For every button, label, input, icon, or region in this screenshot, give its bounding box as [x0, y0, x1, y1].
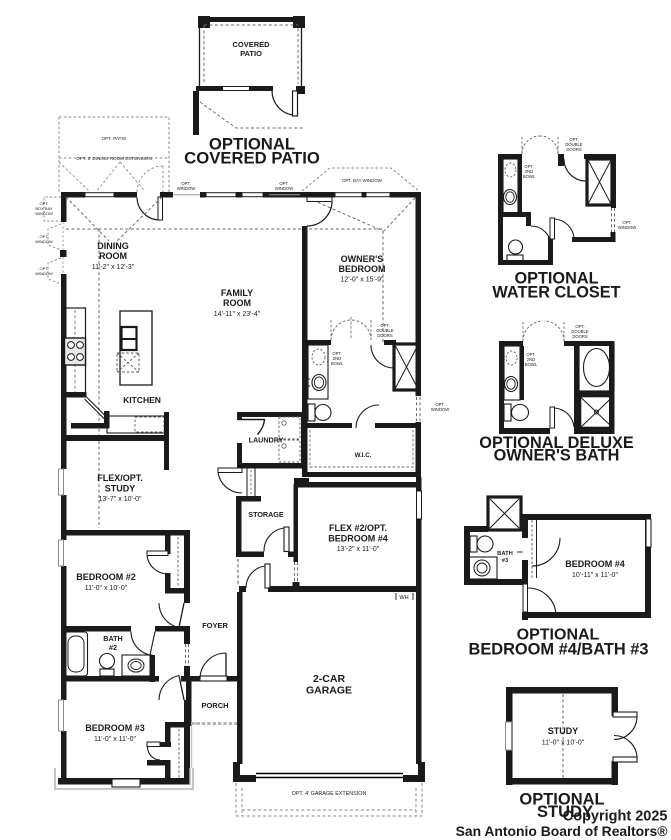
svg-text:WINDOW: WINDOW — [35, 239, 53, 244]
svg-text:BOWL: BOWL — [523, 174, 536, 179]
svg-text:BEDROOM #4: BEDROOM #4 — [328, 534, 388, 544]
svg-text:11'-0" x 10'-0": 11'-0" x 10'-0" — [542, 740, 585, 747]
svg-text:WINDOW: WINDOW — [275, 186, 293, 191]
svg-text:WATER CLOSET: WATER CLOSET — [492, 284, 620, 302]
svg-text:LAUNDRY: LAUNDRY — [249, 436, 284, 445]
svg-text:DOORS: DOORS — [377, 333, 393, 338]
svg-text:DOORS: DOORS — [566, 147, 582, 152]
svg-text:COVERED: COVERED — [232, 40, 270, 49]
svg-text:GARAGE: GARAGE — [306, 685, 352, 697]
svg-text:COVERED PATIO: COVERED PATIO — [184, 149, 320, 168]
svg-text:STUDY: STUDY — [548, 726, 579, 736]
svg-text:WINDOW: WINDOW — [35, 211, 53, 216]
svg-text:2-CAR: 2-CAR — [313, 673, 346, 685]
svg-text:10'-11" x 11'-0": 10'-11" x 11'-0" — [572, 572, 618, 579]
svg-text:ROOM: ROOM — [223, 298, 251, 308]
svg-text:San Antonio Board of Realtors®: San Antonio Board of Realtors® — [456, 823, 669, 839]
svg-text:11'-0" x 11'-0": 11'-0" x 11'-0" — [94, 736, 137, 743]
svg-text:14'-11" x 23'-4": 14'-11" x 23'-4" — [214, 311, 261, 318]
svg-text:FOYER: FOYER — [202, 621, 228, 630]
svg-text:BEDROOM #3: BEDROOM #3 — [85, 723, 145, 733]
svg-text:OPT. 3' DINING ROOM EXTENSION: OPT. 3' DINING ROOM EXTENSION — [76, 156, 152, 161]
svg-text:OPT. 4' GARAGE EXTENSION: OPT. 4' GARAGE EXTENSION — [292, 791, 367, 797]
svg-text:OPT. PATIO: OPT. PATIO — [102, 136, 127, 141]
svg-text:FAMILY: FAMILY — [221, 288, 253, 298]
svg-text:WINDOW: WINDOW — [431, 407, 449, 412]
svg-text:OPT. BAY WINDOW: OPT. BAY WINDOW — [342, 178, 383, 183]
svg-text:PATIO: PATIO — [240, 49, 262, 58]
svg-text:BATH: BATH — [497, 551, 513, 557]
svg-text:13'-2" x 11'-0": 13'-2" x 11'-0" — [337, 546, 380, 553]
svg-text:BEDROOM #4/BATH #3: BEDROOM #4/BATH #3 — [468, 641, 648, 659]
svg-text:BEDROOM: BEDROOM — [339, 264, 386, 274]
svg-text:PORCH: PORCH — [201, 701, 228, 710]
svg-text:BEDROOM #2: BEDROOM #2 — [76, 572, 136, 582]
svg-text:OWNER'S BATH: OWNER'S BATH — [494, 447, 620, 465]
svg-text:WH: WH — [399, 595, 408, 601]
svg-text:BEDROOM #4: BEDROOM #4 — [565, 559, 625, 569]
svg-text:11'-0" x 10'-0": 11'-0" x 10'-0" — [85, 585, 128, 592]
svg-text:12'-0" x 15'-9": 12'-0" x 15'-9" — [340, 277, 384, 284]
svg-text:FLEX #2/OPT.: FLEX #2/OPT. — [329, 523, 387, 533]
svg-text:WINDOW: WINDOW — [35, 271, 53, 276]
svg-text:STUDY: STUDY — [105, 484, 136, 494]
svg-text:DINING: DINING — [97, 241, 129, 251]
svg-text:#3: #3 — [502, 558, 509, 564]
svg-text:STORAGE: STORAGE — [248, 510, 284, 519]
svg-text:OWNER'S: OWNER'S — [341, 254, 384, 264]
svg-text:BATH: BATH — [103, 634, 122, 643]
svg-text:DOORS: DOORS — [572, 334, 588, 339]
svg-text:WINDOW: WINDOW — [618, 225, 636, 230]
svg-text:#2: #2 — [109, 643, 117, 652]
svg-text:BOWL: BOWL — [331, 361, 344, 366]
svg-text:ROOM: ROOM — [99, 251, 127, 261]
svg-text:KITCHEN: KITCHEN — [123, 395, 161, 405]
svg-text:BOWL: BOWL — [525, 362, 538, 367]
svg-text:WINDOW: WINDOW — [177, 186, 195, 191]
svg-text:FLEX/OPT.: FLEX/OPT. — [97, 473, 143, 483]
svg-text:W.I.C.: W.I.C. — [355, 452, 372, 459]
svg-text:11'-2" x 12'-3": 11'-2" x 12'-3" — [92, 264, 135, 271]
svg-text:13'-7" x 10'-0": 13'-7" x 10'-0" — [98, 496, 142, 503]
